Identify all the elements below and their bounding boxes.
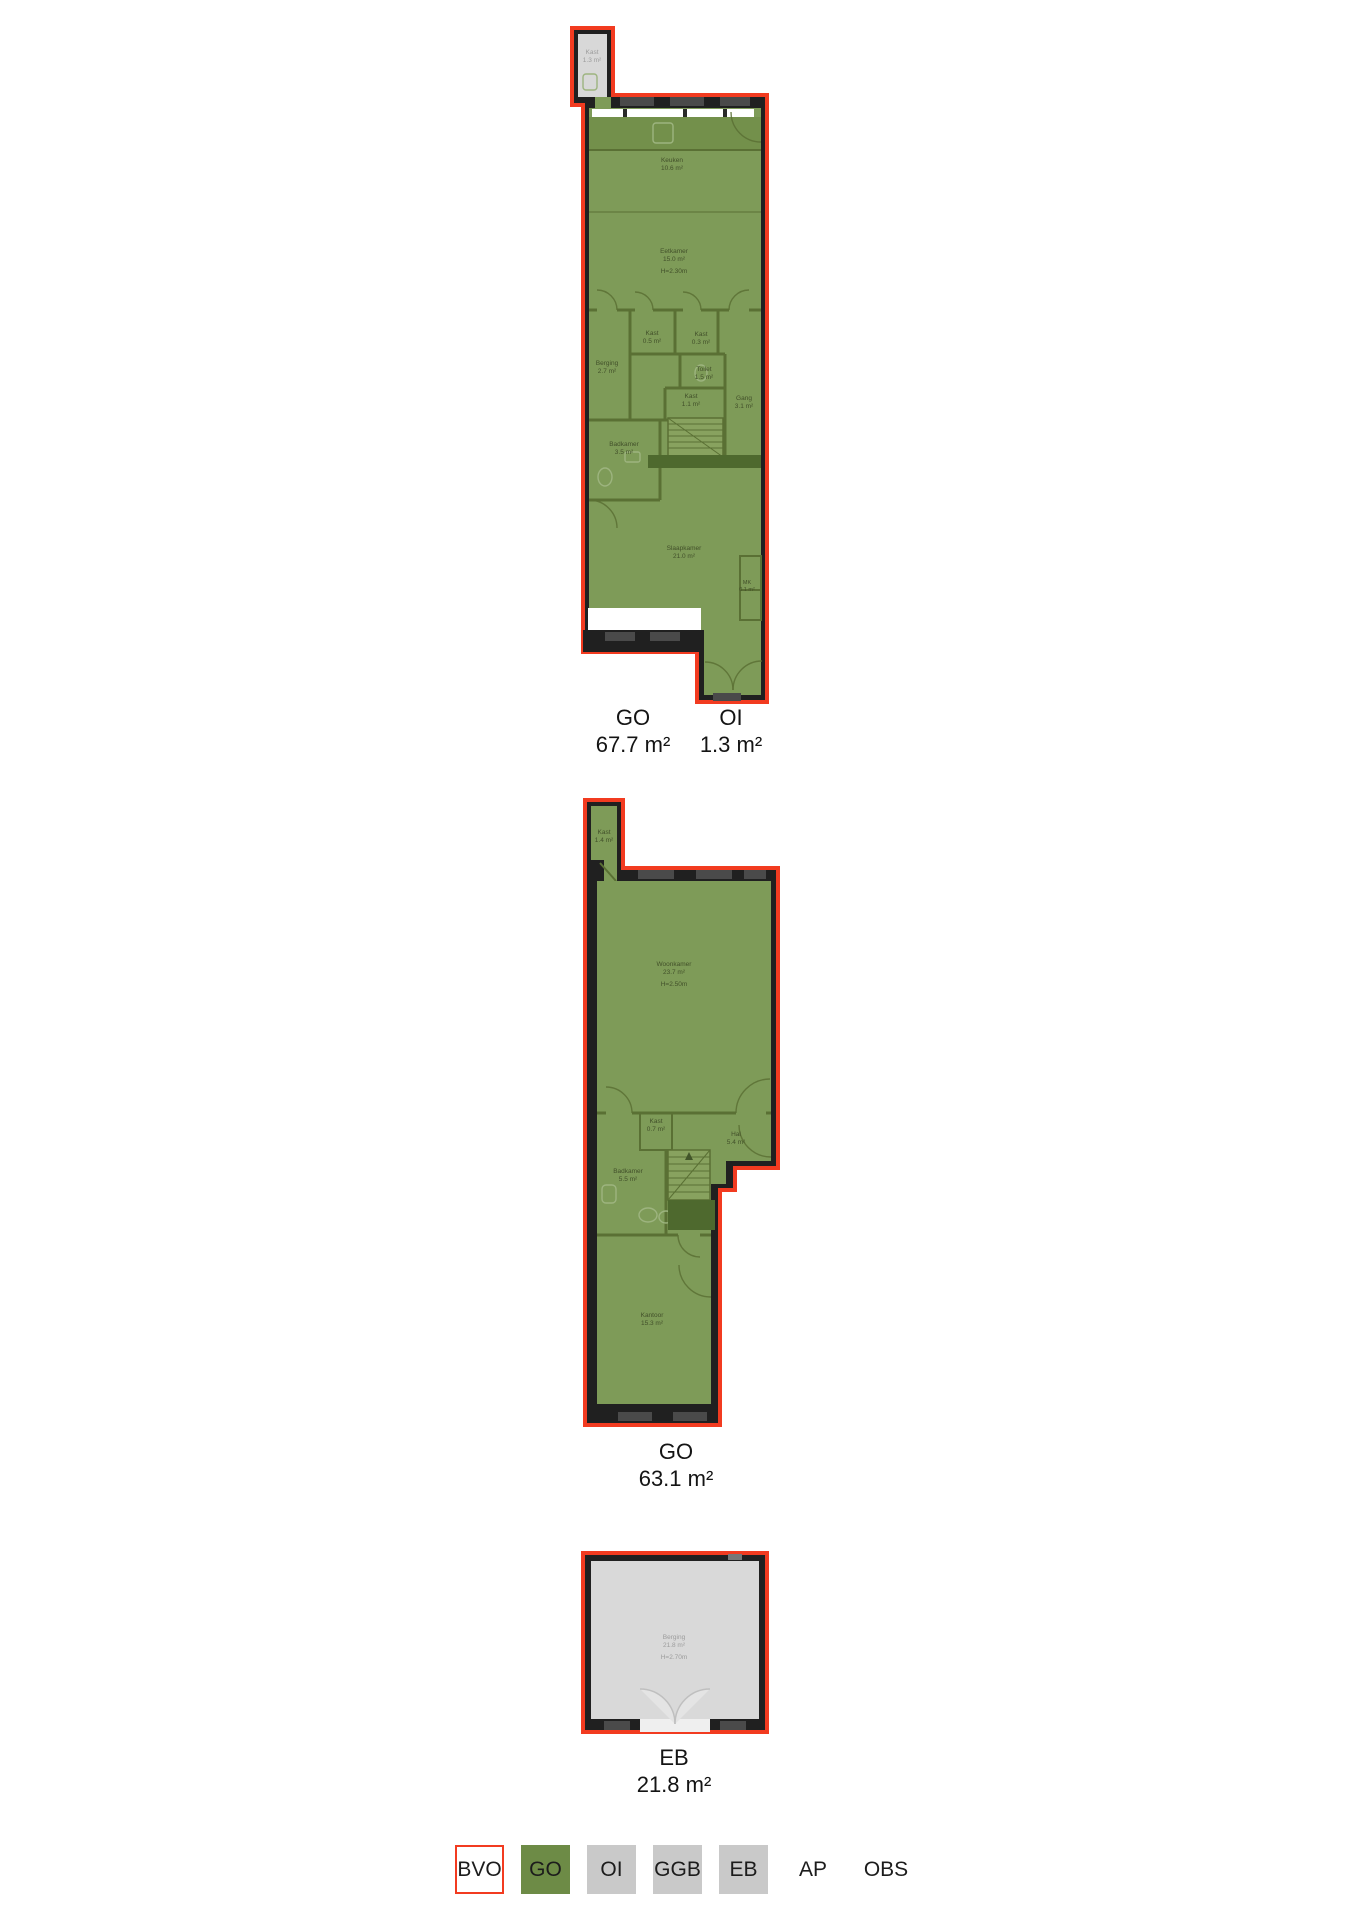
legend-label: OBS — [864, 1858, 908, 1882]
room-area: 5.5 m² — [613, 1176, 643, 1184]
legend-label: OI — [600, 1858, 622, 1882]
room-area: 5.4 m² — [727, 1139, 745, 1147]
floor-2-stair-landing — [668, 1200, 715, 1230]
measurement-oi-floor-1: OI 1.3 m² — [700, 704, 762, 758]
room-name: Kast — [643, 330, 661, 338]
measurement-go-floor-2: GO 63.1 m² — [639, 1438, 714, 1492]
room-name: Kantoor — [641, 1312, 664, 1320]
legend-label: AP — [799, 1858, 827, 1882]
room-area: 3.5 m² — [609, 449, 639, 457]
measurement-code: EB — [637, 1744, 712, 1771]
room-area: 15.3 m² — [641, 1320, 664, 1328]
room-label-berging-eb: Berging 21.8 m² H=2.70m — [661, 1634, 688, 1662]
measurement-code: GO — [596, 704, 671, 731]
room-label-hal: Hal 5.4 m² — [727, 1131, 745, 1147]
room-area: 1.3 m² — [583, 57, 601, 65]
legend-label: BVO — [457, 1858, 501, 1882]
legend-label: GGB — [654, 1858, 701, 1882]
room-label-slaapkamer: Slaapkamer 21.0 m² — [667, 545, 702, 561]
room-label-kast-11: Kast 1.1 m² — [682, 393, 700, 409]
legend-label: GO — [529, 1858, 562, 1882]
room-name: Slaapkamer — [667, 545, 702, 553]
room-area: 23.7 m² — [657, 969, 692, 977]
room-name: Woonkamer — [657, 961, 692, 969]
measurement-code: OI — [700, 704, 762, 731]
room-label-kast-14: Kast 1.4 m² — [595, 829, 613, 845]
room-label-eetkamer: Eetkamer 15.0 m² H=2.30m — [660, 248, 688, 276]
room-label-kast-oi: Kast 1.3 m² — [583, 49, 601, 65]
room-name: Keuken — [661, 157, 683, 165]
measurement-value: 63.1 m² — [639, 1465, 714, 1492]
room-area: 0.1 m² — [739, 587, 755, 594]
room-label-woonkamer: Woonkamer 23.7 m² H=2.50m — [657, 961, 692, 989]
legend-item-eb: EB — [719, 1845, 768, 1894]
room-name: Kast — [583, 49, 601, 57]
legend-item-ggb: GGB — [653, 1845, 702, 1894]
room-area: 2.7 m² — [596, 368, 618, 376]
room-area: 1.1 m² — [682, 401, 700, 409]
measurement-code: GO — [639, 1438, 714, 1465]
room-label-badkamer-1: Badkamer 3.5 m² — [609, 441, 639, 457]
legend: BVO GO OI GGB EB AP OBS — [455, 1845, 914, 1894]
room-name: Kast — [692, 331, 710, 339]
legend-item-obs: OBS — [858, 1845, 914, 1894]
room-name: Kast — [682, 393, 700, 401]
legend-item-ap: AP — [785, 1845, 841, 1894]
room-label-kast-05: Kast 0.5 m² — [643, 330, 661, 346]
room-area: 21.8 m² — [661, 1642, 688, 1650]
room-label-keuken: Keuken 10.6 m² — [661, 157, 683, 173]
room-area: 0.3 m² — [692, 339, 710, 347]
legend-label: EB — [729, 1858, 757, 1882]
room-area: 10.6 m² — [661, 165, 683, 173]
measurement-go-floor-1: GO 67.7 m² — [596, 704, 671, 758]
floor-2-plan — [578, 795, 788, 1435]
measurement-eb-storage: EB 21.8 m² — [637, 1744, 712, 1798]
room-label-badkamer-2: Badkamer 5.5 m² — [613, 1168, 643, 1184]
legend-item-oi: OI — [587, 1845, 636, 1894]
room-height: H=2.70m — [661, 1654, 688, 1662]
room-name: Berging — [661, 1634, 688, 1642]
room-area: 1.5 m² — [695, 374, 713, 382]
legend-item-go: GO — [521, 1845, 570, 1894]
measurement-value: 67.7 m² — [596, 731, 671, 758]
legend-item-bvo: BVO — [455, 1845, 504, 1894]
room-area: 3.1 m² — [735, 403, 753, 411]
room-label-kast-07: Kast 0.7 m² — [647, 1118, 665, 1134]
room-area: 0.5 m² — [643, 338, 661, 346]
room-label-gang: Gang 3.1 m² — [735, 395, 753, 411]
room-name: Eetkamer — [660, 248, 688, 256]
room-name: Berging — [596, 360, 618, 368]
room-label-kast-03: Kast 0.3 m² — [692, 331, 710, 347]
measurement-value: 21.8 m² — [637, 1771, 712, 1798]
room-name: Gang — [735, 395, 753, 403]
room-area: 1.4 m² — [595, 837, 613, 845]
room-name: Hal — [727, 1131, 745, 1139]
room-name: Kast — [647, 1118, 665, 1126]
room-height: H=2.50m — [657, 981, 692, 989]
room-label-toilet: Toilet 1.5 m² — [695, 366, 713, 382]
room-area: 0.7 m² — [647, 1126, 665, 1134]
room-name: Toilet — [695, 366, 713, 374]
room-name: Badkamer — [609, 441, 639, 449]
room-label-mk: MK 0.1 m² — [739, 580, 755, 594]
room-name: MK — [739, 580, 755, 587]
room-name: Badkamer — [613, 1168, 643, 1176]
room-height: H=2.30m — [660, 268, 688, 276]
measurement-value: 1.3 m² — [700, 731, 762, 758]
floorplan-report-page: Kast 1.3 m² Keuken 10.6 m² Eetkamer 15.0… — [0, 0, 1358, 1920]
room-area: 21.0 m² — [667, 553, 702, 561]
room-label-kantoor: Kantoor 15.3 m² — [641, 1312, 664, 1328]
room-area: 15.0 m² — [660, 256, 688, 264]
room-name: Kast — [595, 829, 613, 837]
room-label-berging: Berging 2.7 m² — [596, 360, 618, 376]
